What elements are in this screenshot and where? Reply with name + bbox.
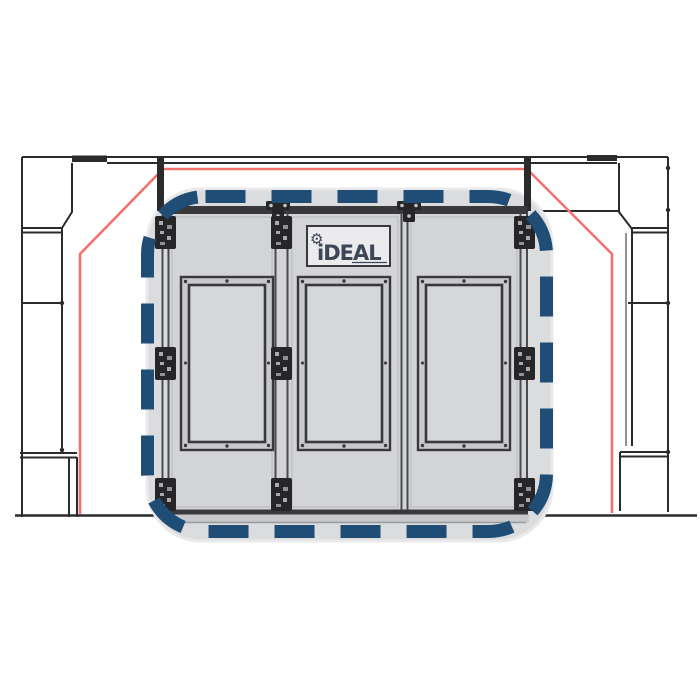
door-bottom-bar xyxy=(162,510,528,515)
hinge xyxy=(271,478,292,511)
left-column xyxy=(20,157,77,517)
hinge xyxy=(155,347,176,380)
bolt-dot xyxy=(60,301,64,305)
booth-diagram-svg: ⚙ iDEAL xyxy=(0,0,700,700)
hinge xyxy=(155,216,176,249)
header-cap-right xyxy=(587,155,617,161)
roof-header xyxy=(22,157,668,163)
door-assembly: ⚙ iDEAL xyxy=(155,201,535,523)
left-jamb xyxy=(157,157,164,211)
bolt-dot xyxy=(666,166,670,170)
product-diagram: ⚙ iDEAL xyxy=(0,0,700,700)
bolt-dot xyxy=(666,301,670,305)
door-sill xyxy=(161,515,529,523)
door-window-center xyxy=(298,277,390,450)
bolt-dot xyxy=(60,448,64,452)
header-cap-left xyxy=(72,156,107,163)
hinge xyxy=(271,347,292,380)
door-window-right xyxy=(418,277,510,450)
door-window-left xyxy=(181,277,273,450)
door-header-bar xyxy=(164,206,528,214)
logo-text: iDEAL xyxy=(317,241,381,265)
bolt-dot xyxy=(666,208,670,212)
logo-plate: ⚙ iDEAL xyxy=(307,226,390,266)
hinge xyxy=(271,216,292,249)
hinge xyxy=(514,347,535,380)
bolt-dot xyxy=(666,450,670,454)
right-jamb xyxy=(524,157,531,211)
